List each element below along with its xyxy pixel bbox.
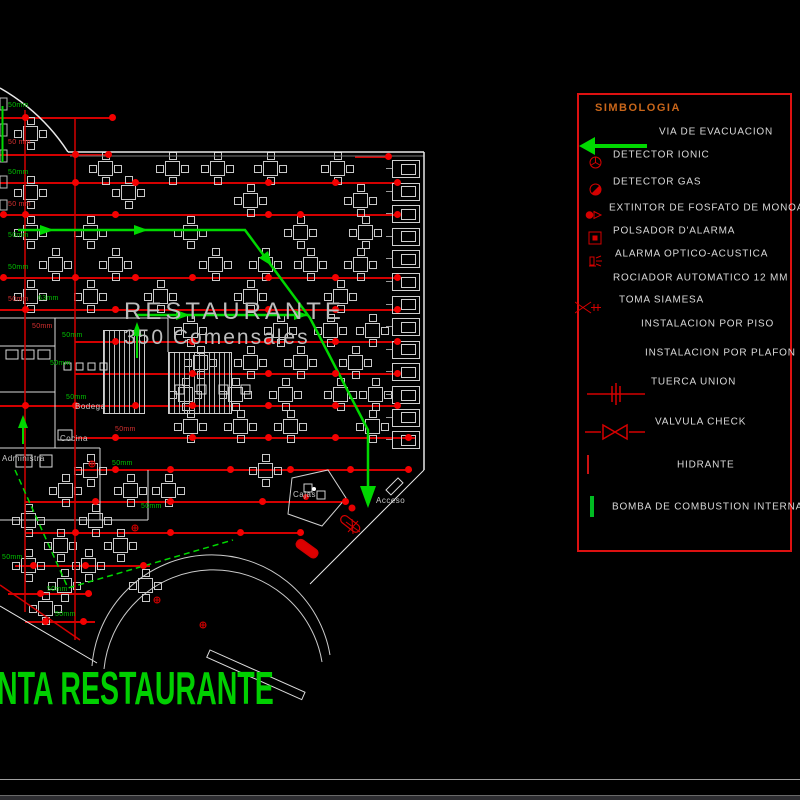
legend-item-label: DETECTOR IONIC	[613, 150, 710, 161]
room-label: Cajas	[293, 490, 316, 499]
room-label: Administra	[2, 454, 45, 463]
pipe-size-label: 50mm	[50, 360, 71, 367]
pipe-size-label: 50mm	[8, 169, 29, 176]
legend-item-ionic: DETECTOR IONIC	[579, 141, 790, 169]
pipe-size-label: 50mm	[115, 426, 136, 433]
pipe-size-label: 50mm	[32, 323, 53, 330]
legend-item-hidrante: HIDRANTE	[579, 448, 790, 482]
viewport-edge-line	[0, 779, 800, 780]
legend-title: SIMBOLOGIA	[595, 102, 681, 114]
pipe-size-label: 50mm	[66, 394, 87, 401]
room-label: Acceso	[376, 496, 405, 505]
legend-item-tuerca: TUERCA UNION	[579, 368, 790, 396]
pipe-size-label: 50mm	[62, 332, 83, 339]
pipe-size-label: 50mm	[112, 460, 133, 467]
legend-item-label: ROCIADOR AUTOMATICO 12 MM	[613, 273, 788, 284]
legend-item-label: POLSADOR D'ALARMA	[613, 226, 735, 237]
area-label-capacity: 350 Comensales	[124, 326, 310, 350]
pipe-size-label: 50mm	[8, 232, 29, 239]
legend-item-label: TUERCA UNION	[651, 377, 736, 388]
legend-item-valvula: VALVULA CHECK	[579, 408, 790, 436]
tuerca-union-icon	[587, 382, 645, 406]
pipe-size-label: 50 mm	[8, 201, 31, 208]
window-bottom-bar	[0, 795, 800, 800]
legend-item-bomba: BOMBA DE COMBUSTION INTERNA	[579, 487, 790, 527]
legend-item-label: HIDRANTE	[677, 460, 735, 471]
hidrante-icon	[587, 455, 589, 474]
pipe-size-label: 50 mm	[8, 139, 31, 146]
legend-box: SIMBOLOGIA VIA DE EVACUACIONDETECTOR ION…	[577, 93, 792, 552]
pipe-size-label: 50mm	[141, 503, 162, 510]
pipe-size-label: 50mm	[8, 264, 29, 271]
legend-item-plafon: INSTALACION POR PLAFON	[579, 339, 790, 367]
legend-item-gas: DETECTOR GAS	[579, 168, 790, 196]
legend-item-label: DETECTOR GAS	[613, 177, 701, 188]
bomba-icon-wrap	[590, 498, 594, 516]
pipe-size-label: 63mm	[38, 295, 59, 302]
valvula-check-icon	[585, 422, 645, 442]
pipe-size-label: 50mm	[47, 586, 68, 593]
pipe-size-label: 50mm	[2, 554, 23, 561]
pipe-size-label: 50mm	[55, 611, 76, 618]
legend-item-label: VALVULA CHECK	[655, 417, 746, 428]
legend-item-label: BOMBA DE COMBUSTION INTERNA	[612, 502, 800, 513]
room-label: Cocina	[60, 434, 88, 443]
pipe-size-label: 50mm	[8, 102, 29, 109]
legend-item-label: TOMA SIAMESA	[619, 295, 704, 306]
legend-item-label: VIA DE EVACUACION	[659, 127, 773, 138]
sheet-title: NTA RESTAURANTE	[0, 661, 274, 715]
legend-item-label: INSTALACION POR PISO	[641, 319, 774, 330]
bomba-icon	[590, 496, 594, 517]
legend-item-label: INSTALACION POR PLAFON	[645, 348, 796, 359]
area-label-restaurante: RESTAURANTE	[124, 298, 345, 326]
hidrante-icon-wrap	[587, 456, 589, 474]
legend-item-label: EXTINTOR DE FOSFATO DE MONOAM	[609, 203, 800, 214]
legend-item-piso: INSTALACION POR PISO	[579, 310, 790, 338]
room-label: Bodega	[75, 402, 106, 411]
legend-item-label: ALARMA OPTICO-ACUSTICA	[615, 249, 768, 260]
cad-canvas: 50mm50 mm50mm50 mm50mm50mm50mm63mm50mm50…	[0, 0, 800, 800]
pipe-size-label: 50mm	[8, 296, 29, 303]
